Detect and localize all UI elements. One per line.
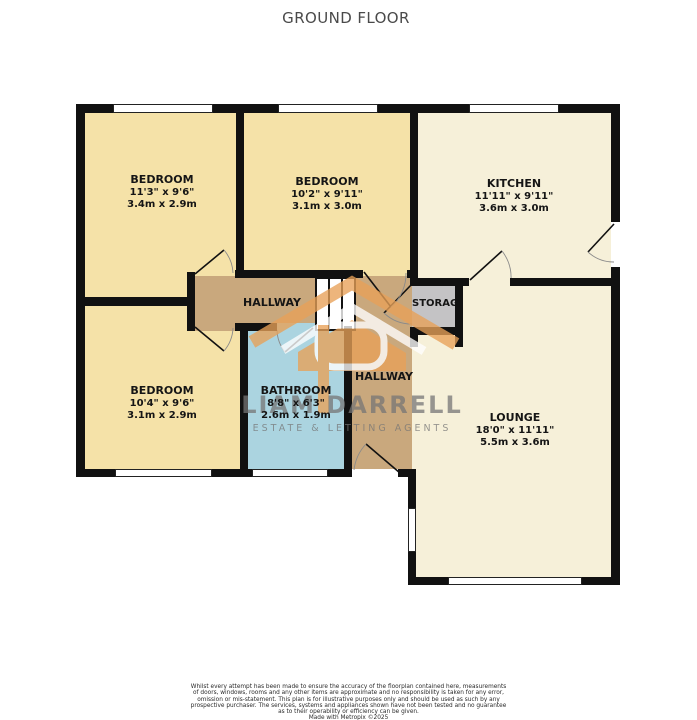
room-size-imperial: 18'0" x 11'11" xyxy=(476,425,555,438)
room-size-imperial: 8'8" x 6'3" xyxy=(261,398,332,411)
storage-door-arc xyxy=(384,313,412,324)
room-name: BATHROOM xyxy=(261,385,332,398)
room-size-imperial: 10'2" x 9'11" xyxy=(291,189,363,202)
room-label-hallway-1: HALLWAY xyxy=(243,296,301,309)
wall xyxy=(410,335,418,347)
bedroom1-window xyxy=(113,104,213,113)
room-size-imperial: 10'4" x 9'6" xyxy=(127,398,197,411)
kitchen-window xyxy=(469,104,559,113)
bedroom3-window xyxy=(115,469,212,477)
bedroom1-door-leaf xyxy=(195,250,224,274)
room-size-metric: 5.5m x 3.6m xyxy=(476,437,555,450)
bedroom1-door-arc xyxy=(224,250,233,273)
bedroom2-door-leaf xyxy=(364,272,391,307)
wall xyxy=(510,278,611,286)
room-size-imperial: 11'11" x 9'11" xyxy=(475,191,554,204)
floorplan-page: GROUND FLOOR xyxy=(0,0,697,720)
room-size-metric: 3.6m x 3.0m xyxy=(475,203,554,216)
storage-door-leaf xyxy=(384,284,412,313)
room-name: BEDROOM xyxy=(291,176,363,189)
wall xyxy=(240,323,248,477)
front-door-arc xyxy=(354,444,366,470)
wall xyxy=(410,327,463,335)
wall xyxy=(76,297,195,306)
wall xyxy=(611,267,620,585)
room-label-kitchen: KITCHEN 11'11" x 9'11" 3.6m x 3.0m xyxy=(475,178,554,216)
room-size-metric: 3.4m x 2.9m xyxy=(127,199,197,212)
page-title: GROUND FLOOR xyxy=(282,9,410,27)
front-door-leaf xyxy=(366,444,400,473)
disclaimer-text: Whilst every attempt has been made to en… xyxy=(0,684,697,720)
lounge-bottom-window xyxy=(448,577,582,585)
room-name: BEDROOM xyxy=(127,174,197,187)
room-size-metric: 3.1m x 3.0m xyxy=(291,201,363,214)
wall xyxy=(236,104,244,270)
kitchen-exterior-door-arc xyxy=(588,252,614,262)
lounge-side-window xyxy=(408,508,416,552)
wall xyxy=(410,104,418,286)
bathroom-window xyxy=(252,469,328,477)
kitchen-exterior-door-leaf xyxy=(588,224,614,252)
wall xyxy=(235,270,363,278)
room-size-imperial: 11'3" x 9'6" xyxy=(127,187,197,200)
room-size-metric: 3.1m x 2.9m xyxy=(127,410,197,423)
wall xyxy=(611,104,620,222)
bathroom-door-arc xyxy=(277,330,285,352)
bedroom2-window xyxy=(278,104,378,113)
wall xyxy=(455,278,463,347)
room-label-lounge: LOUNGE 18'0" x 11'11" 5.5m x 3.6m xyxy=(476,412,555,450)
room-label-hallway-2: HALLWAY xyxy=(355,370,413,383)
bathroom-door-leaf xyxy=(285,328,313,352)
disclaimer-credit: Made with Metropix ©2025 xyxy=(0,715,697,720)
wall xyxy=(187,272,195,331)
bedroom2-door-arc xyxy=(391,273,406,307)
wall xyxy=(76,104,85,477)
room-label-bedroom3: BEDROOM 10'4" x 9'6" 3.1m x 2.9m xyxy=(127,385,197,423)
wall xyxy=(344,326,352,469)
room-size-metric: 2.6m x 1.9m xyxy=(261,410,332,423)
room-name: BEDROOM xyxy=(127,385,197,398)
room-label-storage: STORAGE xyxy=(412,298,455,311)
room-label-bedroom1: BEDROOM 11'3" x 9'6" 3.4m x 2.9m xyxy=(127,174,197,212)
room-label-bedroom2: BEDROOM 10'2" x 9'11" 3.1m x 3.0m xyxy=(291,176,363,214)
kitchen-door-arc xyxy=(502,251,511,280)
room-name: KITCHEN xyxy=(475,178,554,191)
room-name: LOUNGE xyxy=(476,412,555,425)
wall xyxy=(407,270,418,278)
bedroom3-door-leaf xyxy=(195,327,224,351)
room-label-bathroom: BATHROOM 8'8" x 6'3" 2.6m x 1.9m xyxy=(261,385,332,423)
kitchen-door-leaf xyxy=(470,251,502,280)
bedroom3-door-arc xyxy=(224,328,233,351)
